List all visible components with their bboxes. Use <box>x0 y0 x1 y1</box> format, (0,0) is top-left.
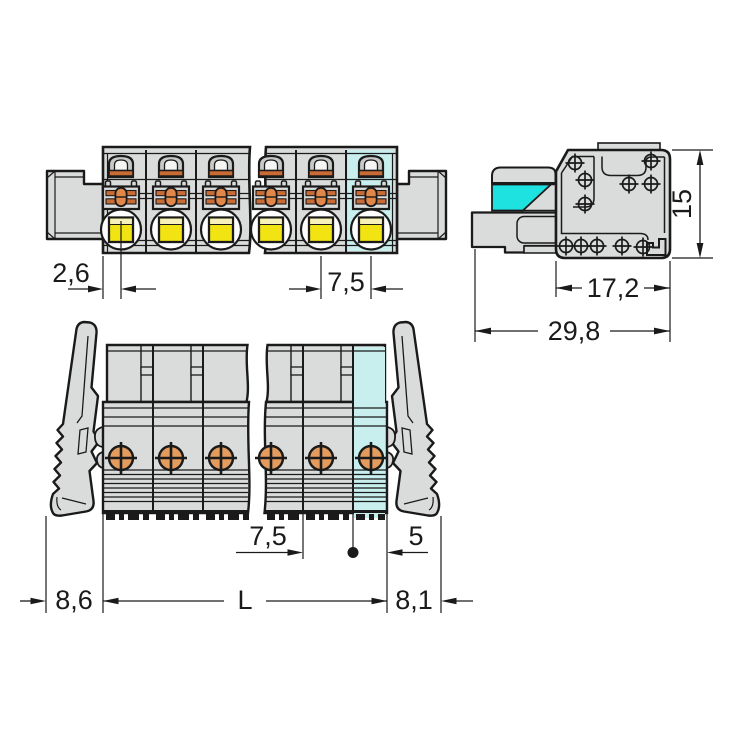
side-plug-step <box>524 246 558 253</box>
side-view: 15 17,2 29,8 <box>472 143 713 346</box>
dim-side-height: 15 <box>667 150 713 258</box>
dim-side-total: 29,8 <box>475 249 670 346</box>
dim-bottom-right-overhang: 8,1 <box>387 513 473 615</box>
front-view: 2,6 7,5 <box>47 147 446 299</box>
dim-label-bottom-end: 5 <box>408 521 423 551</box>
bottom-view: 7,5 5 8,6 L 8,1 <box>20 322 473 615</box>
mounting-flange-right <box>397 171 446 239</box>
dim-front-pitch: 7,5 <box>289 256 403 299</box>
technical-drawing-page: 2,6 7,5 <box>0 0 750 750</box>
dim-bottom-left-overhang: 8,6 <box>20 513 103 615</box>
bottom-upper-left-section <box>107 345 248 402</box>
dim-label-left-overhang: 8,6 <box>55 585 93 615</box>
dim-label-bottom-pitch: 7,5 <box>249 521 287 551</box>
dim-label-side-depth: 17,2 <box>587 273 640 303</box>
dim-label-side-height: 15 <box>667 189 697 219</box>
dim-bottom-length: L <box>103 585 387 615</box>
locking-lever-left <box>51 322 103 516</box>
mounting-flange-left <box>47 171 103 239</box>
dim-label-length: L <box>237 585 252 615</box>
dim-bottom-end: 5 <box>387 521 428 556</box>
side-body <box>556 150 670 258</box>
connector-dimension-drawing: 2,6 7,5 <box>0 0 750 750</box>
dim-label-side-total: 29,8 <box>548 316 601 346</box>
bottom-teeth <box>106 514 385 520</box>
dim-label-front-offset: 2,6 <box>52 258 90 288</box>
dim-label-front-pitch: 7,5 <box>327 267 365 297</box>
dim-reference-dot <box>348 547 359 558</box>
side-lever-cap <box>492 168 556 184</box>
dim-label-right-overhang: 8,1 <box>395 585 433 615</box>
locking-lever-right <box>387 322 439 516</box>
